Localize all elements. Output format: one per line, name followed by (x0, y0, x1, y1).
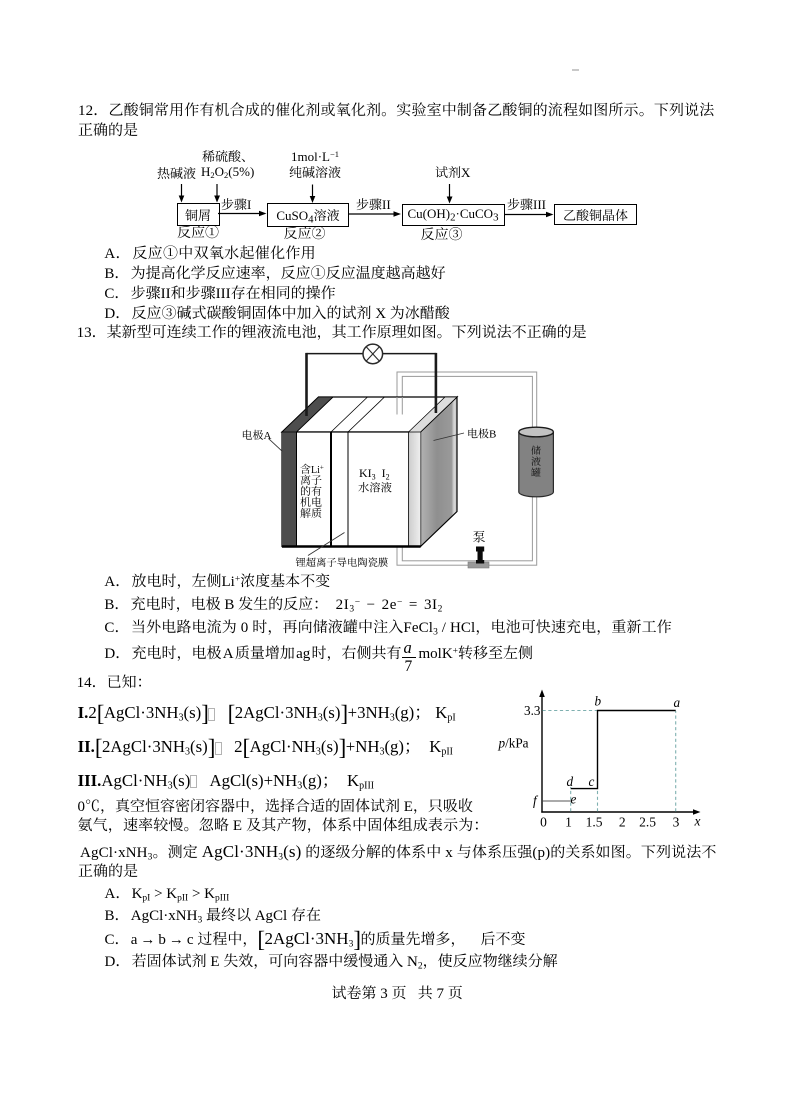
svg-text:2.5: 2.5 (639, 815, 656, 830)
svg-text:电极B: 电极B (467, 428, 496, 441)
svg-text:3.3: 3.3 (524, 703, 541, 718)
svg-text:罐: 罐 (531, 467, 541, 479)
svg-text:f: f (533, 793, 539, 808)
svg-text:水溶液: 水溶液 (358, 482, 392, 495)
svg-text:锂超离子导电陶瓷膜: 锂超离子导电陶瓷膜 (296, 557, 389, 569)
svg-text:1.5: 1.5 (586, 815, 603, 830)
svg-text:电极A: 电极A (242, 429, 272, 442)
svg-text:x: x (694, 814, 701, 829)
svg-text:b: b (595, 694, 602, 709)
svg-text:液: 液 (531, 456, 541, 468)
svg-text:a: a (674, 695, 681, 710)
svg-text:储: 储 (531, 445, 541, 457)
svg-text:3: 3 (673, 815, 680, 830)
svg-text:c: c (589, 774, 595, 789)
svg-text:0: 0 (540, 815, 547, 830)
svg-text:1: 1 (565, 815, 572, 830)
svg-text:e: e (571, 792, 577, 807)
svg-text:解质: 解质 (300, 507, 322, 520)
svg-text:泵: 泵 (473, 530, 486, 545)
svg-text:d: d (567, 774, 574, 789)
svg-text:2: 2 (619, 815, 626, 830)
svg-text:p/kPa: p/kPa (498, 736, 529, 751)
